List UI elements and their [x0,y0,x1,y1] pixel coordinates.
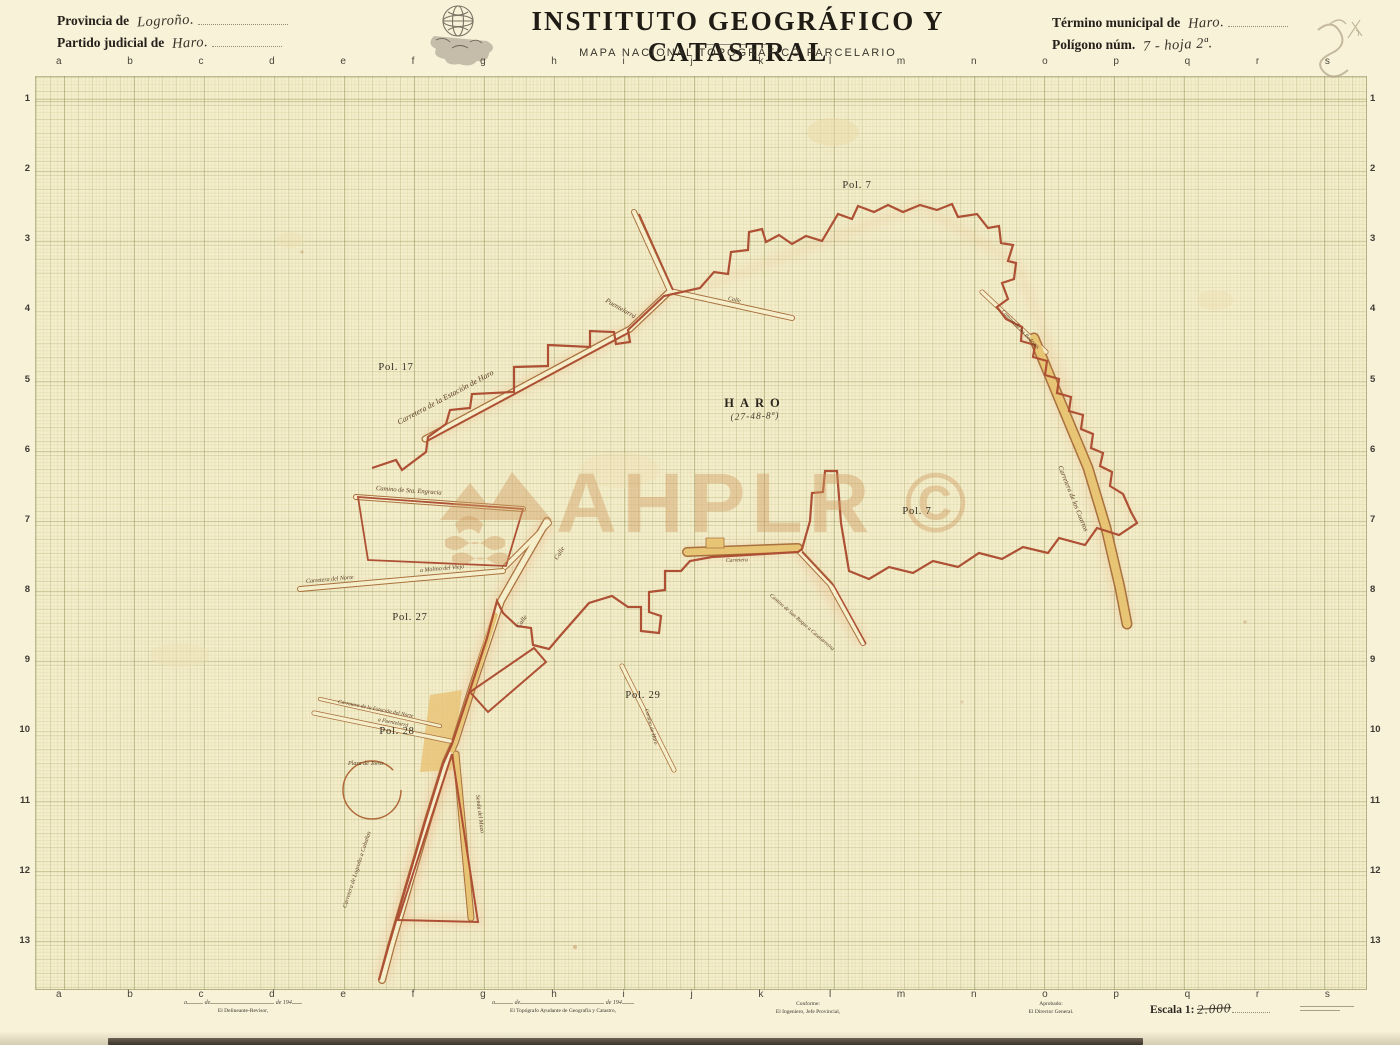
pencil-scribble [1318,20,1362,77]
grid-number: 9 [25,654,30,665]
signature-block-aprobado: Aprobado: El Director General. [1005,1000,1097,1016]
grid-letter: n [971,989,977,1000]
grid-letter: q [1185,56,1191,67]
signature-block-conforme: Conforme: El Ingeniero, Jefe Provincial, [762,1000,854,1016]
grid-letter: d [269,56,275,67]
grid-letter: e [340,989,346,1000]
polygon-label-7-top: Pol. 7 [842,180,871,191]
scale-label: Escala 1: [1150,1004,1194,1016]
grid-letter: j [690,989,692,1000]
grid-letter: o [1042,56,1048,67]
grid-letters-top: abcdefghijklmnopqrs [56,56,1330,67]
grid-number: 1 [1370,93,1375,104]
poligono-field: Polígono núm. 7 - hoja 2ª. [1052,37,1216,54]
polygon-label-17: Pol. 17 [378,362,413,373]
archive-watermark: AHPLR © [556,455,973,552]
grid-letter: r [1256,989,1259,1000]
polygon-label-29: Pol. 29 [625,690,660,701]
partido-blank-line [212,34,282,47]
signature-title-2: El Topógrafo Ayudante de Geografía y Cat… [468,1007,658,1015]
grid-number: 11 [20,795,30,806]
grid-letter: l [829,56,831,67]
grid-number: 7 [1370,514,1375,525]
termino-value: Haro. [1183,14,1228,33]
grid-letter: k [758,989,763,1000]
grid-letter: k [758,56,763,67]
date-blank-line-1: a de de 194 [168,998,318,1007]
grid-letter: f [412,56,415,67]
grid-letter: l [829,989,831,1000]
grid-number: 12 [1370,865,1381,876]
grid-number: 13 [1370,935,1381,946]
poligono-value: 7 - hoja 2ª. [1138,35,1216,56]
grid-letter: i [623,56,625,67]
grid-number: 10 [1370,724,1381,735]
grid-letter: s [1325,56,1330,67]
boundary-lines [358,204,1137,980]
road-aureole [382,205,1137,980]
conforme-signature: El Ingeniero, Jefe Provincial, [762,1008,854,1016]
grid-number: 5 [1370,374,1375,385]
grid-letter: e [340,56,346,67]
conforme-label: Conforme: [762,1000,854,1008]
provincia-blank-line [198,12,288,25]
poligono-label: Polígono núm. [1052,37,1135,52]
aprobado-label: Aprobado: [1005,1000,1097,1008]
grid-number: 2 [1370,163,1375,174]
grid-number: 13 [19,935,30,946]
grid-letter: c [198,56,203,67]
town-label: HARO [700,396,810,411]
polygon-label-7-right: Pol. 7 [902,506,931,517]
grid-letter: s [1325,989,1330,1000]
grid-number: 5 [25,374,30,385]
grid-number: 3 [1370,233,1375,244]
termino-blank-line [1228,14,1288,27]
grid-letter: f [412,989,415,1000]
grid-number: 1 [25,93,30,104]
provincia-label: Provincia de [57,13,129,28]
provincia-field: Provincia de Logroño. [57,12,288,30]
scale-blank-line [1232,1000,1270,1013]
partido-label: Partido judicial de [57,35,164,50]
grid-numbers-left: 12345678910111213 [12,93,30,946]
grid-letter: h [551,56,557,67]
grid-letter: n [971,56,977,67]
provincia-value: Logroño. [132,11,198,31]
grid-letter: m [897,989,905,1000]
title-underline [700,44,776,45]
grid-number: 2 [25,163,30,174]
roads [300,212,1127,980]
grid-letter: r [1256,56,1259,67]
bullring-circle [343,761,401,819]
grid-number: 8 [25,584,30,595]
termino-field: Término municipal de Haro. [1052,14,1288,32]
grid-letter: m [897,56,905,67]
grid-letter: a [56,989,62,1000]
printer-fine-print [1300,1006,1354,1014]
grid-number: 7 [25,514,30,525]
date-blank-line-2: a de de 194 [468,998,658,1007]
grid-number: 3 [25,233,30,244]
signature-block-2: a de de 194 El Topógrafo Ayudante de Geo… [468,998,658,1015]
termino-label: Término municipal de [1052,15,1180,30]
grid-number: 11 [1370,795,1380,806]
grid-number: 6 [1370,444,1375,455]
grid-letter: b [127,989,133,1000]
grid-letter: a [56,56,62,67]
grid-number: 4 [25,303,30,314]
grid-number: 4 [1370,303,1375,314]
grid-numbers-right: 12345678910111213 [1370,93,1388,946]
road-label-carretera-mid: Carretera [726,557,748,564]
aprobado-signature: El Director General. [1005,1008,1097,1016]
grid-letter: q [1185,989,1191,1000]
grid-number: 6 [25,444,30,455]
partido-field: Partido judicial de Haro. [57,34,282,52]
cadastral-map-sheet: AHPLR © Provincia de Logroño. Partido ju… [0,0,1400,1045]
sheet-edge [108,1038,1143,1045]
road-label-plaza-toros: Plaza de Toros [348,761,384,767]
polygon-label-28: Pol. 28 [379,726,414,737]
signature-block-1: a de de 194 El Delineante-Revisor, [168,998,318,1015]
polygon-label-27: Pol. 27 [392,612,427,623]
partido-value: Haro. [167,34,212,53]
grid-letter: j [690,56,692,67]
scale-value: 2.000 [1197,1000,1232,1018]
grid-number: 12 [19,865,30,876]
grid-letter: p [1113,989,1119,1000]
scale-field: Escala 1: 2.000 [1150,1000,1270,1017]
grid-letter: b [127,56,133,67]
grid-letter: g [480,56,486,67]
signature-title-1: El Delineante-Revisor, [168,1007,318,1015]
grid-number: 8 [1370,584,1375,595]
grid-letter: o [1042,989,1048,1000]
grid-number: 9 [1370,654,1375,665]
grid-letter: p [1113,56,1119,67]
grid-number: 10 [19,724,30,735]
